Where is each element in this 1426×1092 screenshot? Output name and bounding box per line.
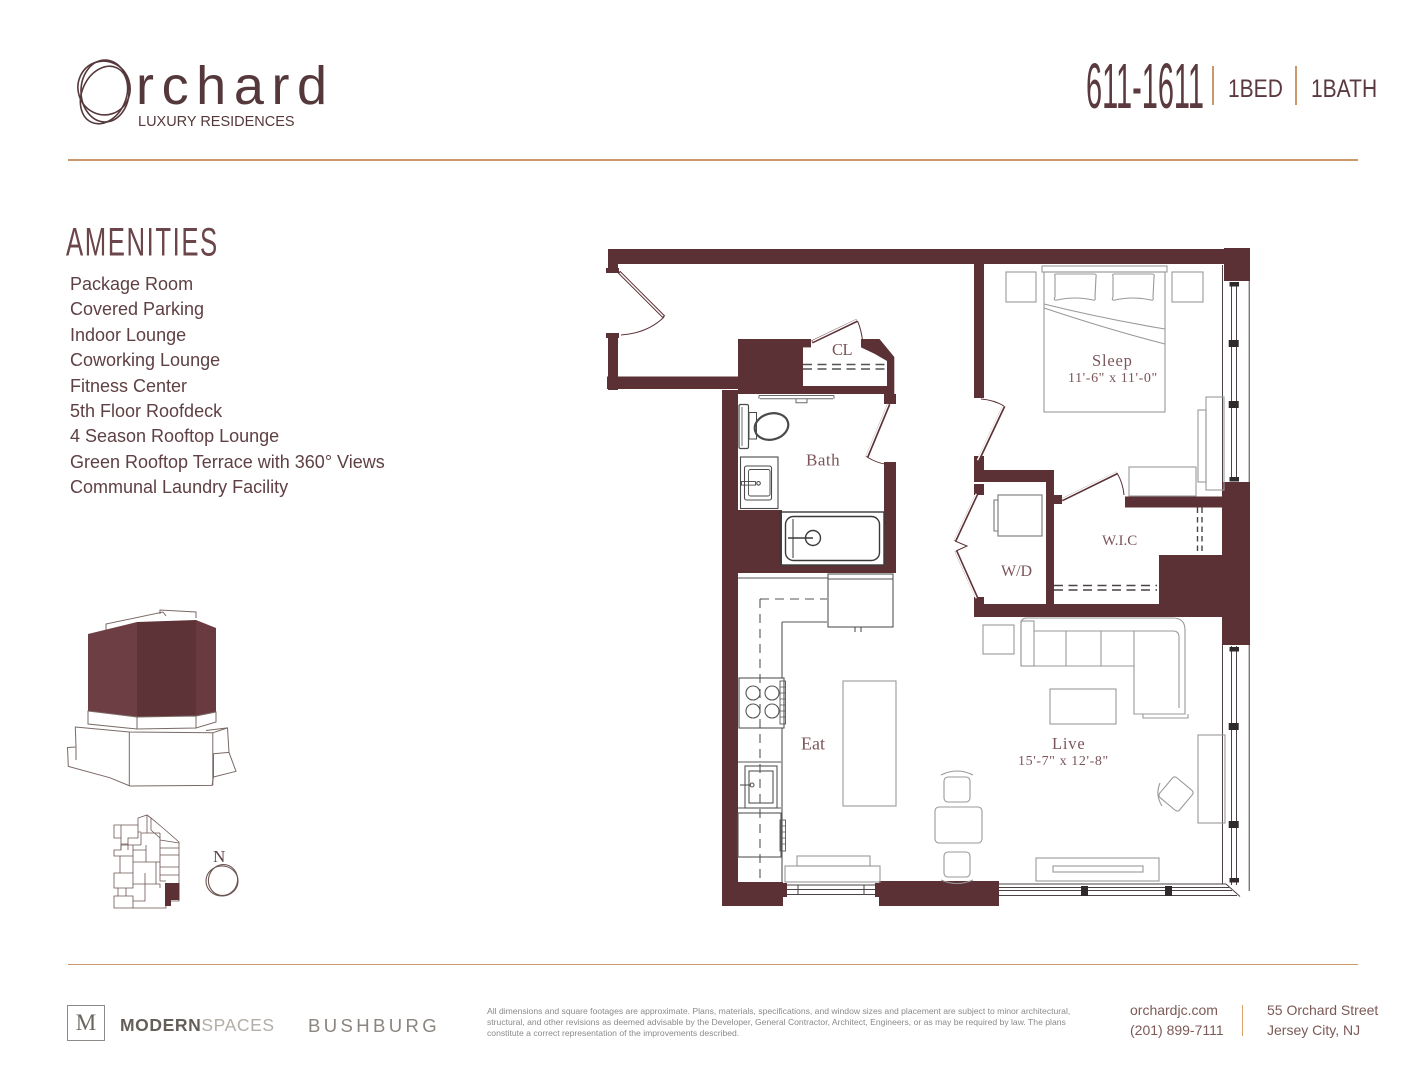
svg-text:15'-7" x 12'-8": 15'-7" x 12'-8"	[1018, 754, 1109, 769]
svg-text:Bath: Bath	[806, 451, 840, 470]
svg-text:11'-6" x 11'-0": 11'-6" x 11'-0"	[1068, 371, 1158, 386]
svg-text:CL: CL	[832, 340, 853, 359]
svg-text:Eat: Eat	[801, 734, 825, 754]
svg-text:Sleep: Sleep	[1092, 351, 1133, 370]
svg-text:W.I.C: W.I.C	[1102, 533, 1137, 549]
svg-text:W/D: W/D	[1001, 563, 1032, 580]
svg-text:N: N	[213, 847, 225, 866]
svg-text:Live: Live	[1052, 734, 1085, 753]
